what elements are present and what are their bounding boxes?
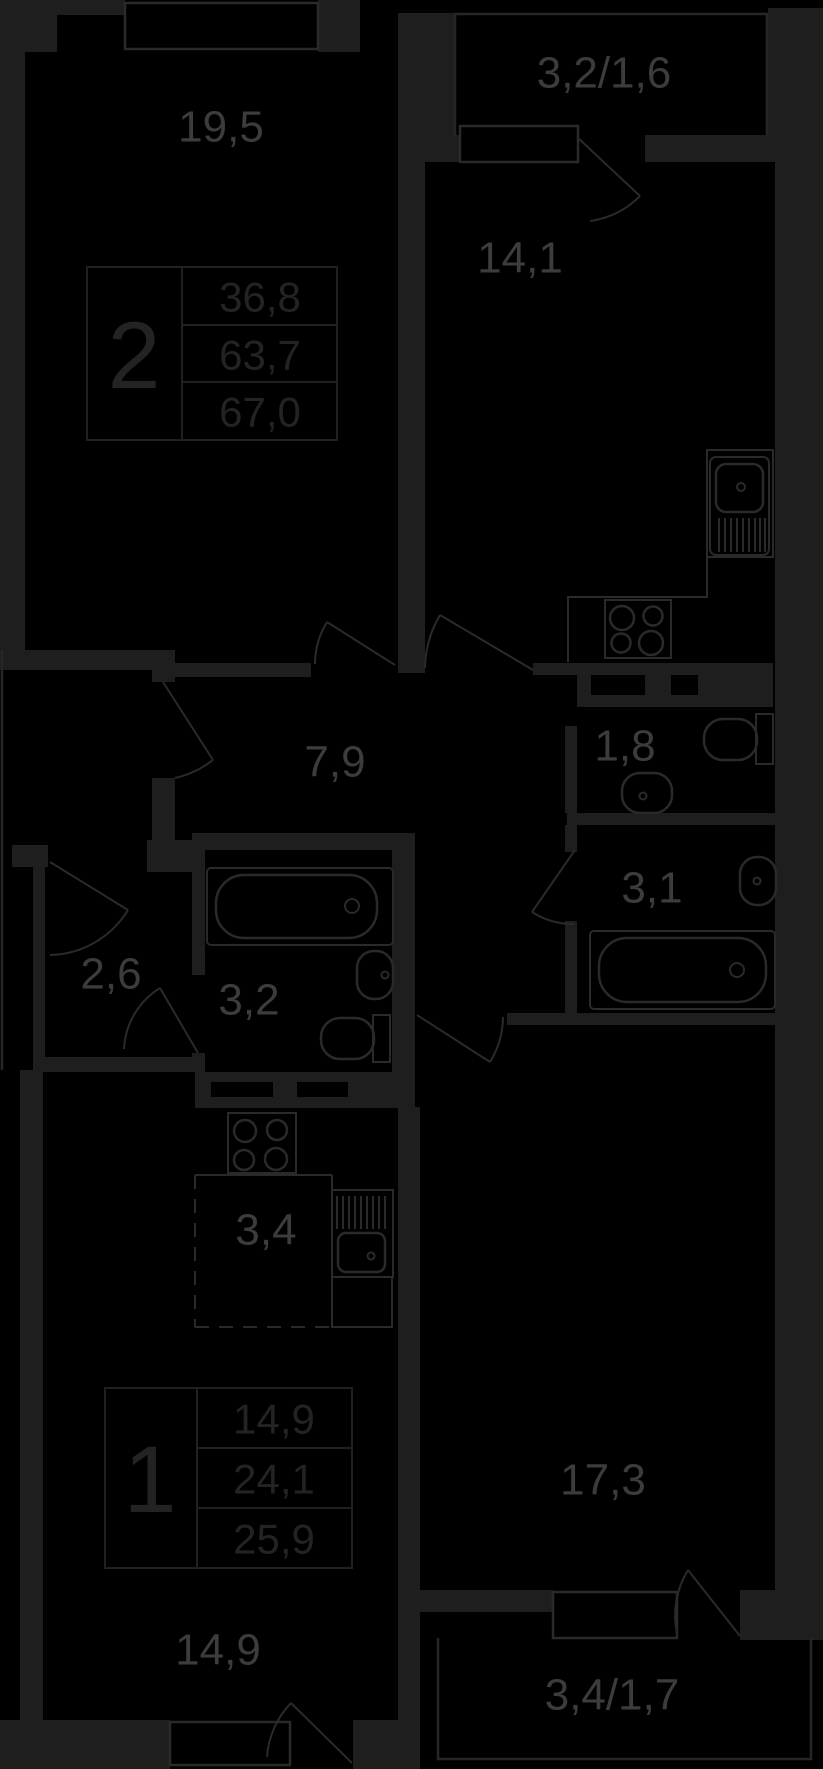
stamp-total-area: 25,9 xyxy=(233,1516,315,1563)
stove-icon xyxy=(228,1113,296,1173)
toilet-icon xyxy=(321,1015,390,1062)
room-label-bathroom-apt1: 3,2 xyxy=(218,976,279,1025)
room-label-hallway: 7,9 xyxy=(304,738,365,787)
room1-window xyxy=(170,1722,290,1765)
door-apt2-entrance xyxy=(163,682,213,778)
room-label-balcony-bottom: 3,4/1,7 xyxy=(545,1671,680,1720)
toilet-icon xyxy=(704,714,773,764)
stamp-living-area: 14,9 xyxy=(233,1396,315,1443)
kitchen-sink-icon xyxy=(710,457,769,555)
kitchen-balcony-window xyxy=(460,126,578,162)
bathtub-icon xyxy=(207,868,393,945)
room-label-kitchen-niche: 3,4 xyxy=(235,1206,296,1255)
vent-shaft-niche xyxy=(195,1072,415,1108)
room-label-bathroom-apt2: 3,1 xyxy=(621,864,682,913)
door-balcony-bottom xyxy=(675,1570,740,1636)
apartment-stamp-2: 2 36,8 63,7 67,0 xyxy=(87,267,337,440)
door-kitchen xyxy=(315,622,395,665)
apartment-stamp-1: 1 14,9 24,1 25,9 xyxy=(105,1388,352,1568)
washbasin-icon xyxy=(622,773,672,813)
stamp-area: 63,7 xyxy=(219,332,301,379)
stamp-area: 24,1 xyxy=(233,1456,315,1503)
door-apt1-entrance xyxy=(50,862,128,955)
room-label-living-room: 17,3 xyxy=(560,1456,646,1505)
room-label-bedroom: 19,5 xyxy=(178,103,264,152)
door-hall-kitchen xyxy=(425,615,533,670)
room-label-balcony-top: 3,2/1,6 xyxy=(537,49,672,98)
room-label-room-apt1: 14,9 xyxy=(175,1626,261,1675)
washbasin-icon xyxy=(740,857,776,905)
bedroom-window xyxy=(125,3,318,49)
living-balcony-window xyxy=(553,1592,677,1638)
floor-plan: 19,5 3,2/1,6 14,1 7,9 1,8 3,1 2,6 3,2 3,… xyxy=(0,0,823,1769)
kitchen-sink-icon xyxy=(332,1190,393,1327)
washbasin-icon xyxy=(357,951,393,999)
vent-shaft-kitchen xyxy=(533,663,773,707)
door-bathroom-apt2 xyxy=(532,850,575,924)
room-label-hall-apt1: 2,6 xyxy=(80,950,141,999)
room-label-kitchen: 14,1 xyxy=(477,234,563,283)
apartment-type-number: 1 xyxy=(124,1427,177,1533)
door-living-room xyxy=(417,1015,503,1062)
stamp-living-area: 36,8 xyxy=(219,274,301,321)
bathtub-icon xyxy=(590,931,775,1009)
room-label-wc: 1,8 xyxy=(594,722,655,771)
stamp-total-area: 67,0 xyxy=(219,389,301,436)
stove-icon xyxy=(605,600,671,658)
door-balcony-top xyxy=(578,138,640,221)
apartment-type-number: 2 xyxy=(108,303,161,409)
